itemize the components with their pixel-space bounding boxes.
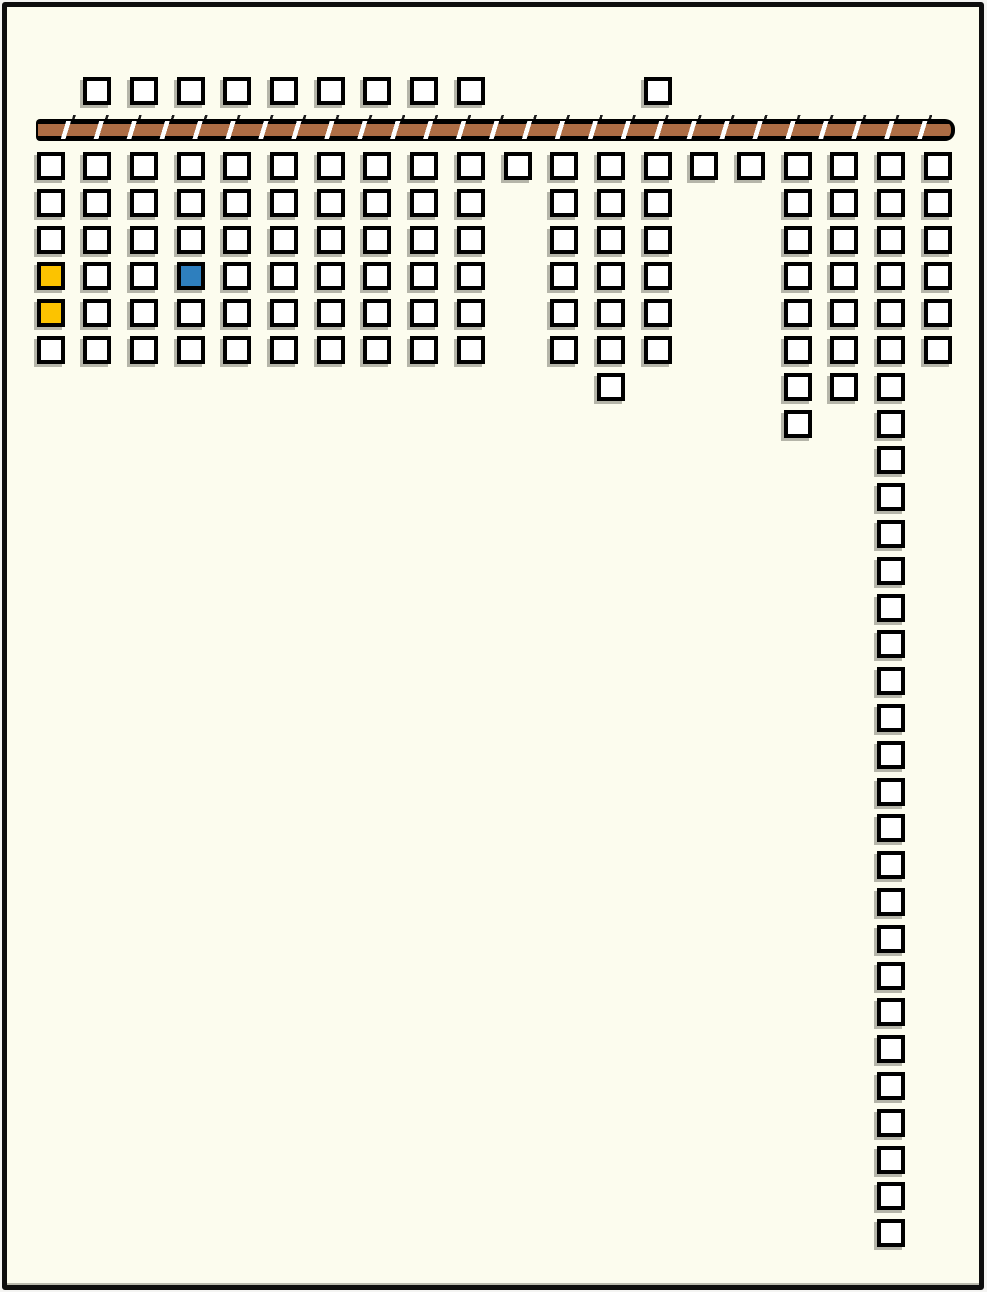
cell-r1-c4[interactable] [223, 189, 251, 217]
cell-r2-c2[interactable] [130, 226, 158, 254]
cell-r1-c19[interactable] [924, 189, 952, 217]
cell-r7-c16[interactable] [784, 410, 812, 438]
cell-top-c8[interactable] [410, 77, 438, 105]
hatched-bar [36, 119, 955, 141]
cell-r26-c18[interactable] [877, 1109, 905, 1137]
cell-r0-c12[interactable] [597, 152, 625, 180]
cell-r25-c18[interactable] [877, 1072, 905, 1100]
cell-r14-c18[interactable] [877, 667, 905, 695]
cell-r5-c5[interactable] [270, 336, 298, 364]
cell-r23-c18[interactable] [877, 998, 905, 1026]
cell-r1-c6[interactable] [317, 189, 345, 217]
cell-r5-c11[interactable] [550, 336, 578, 364]
cell-r22-c18[interactable] [877, 962, 905, 990]
cell-r2-c5[interactable] [270, 226, 298, 254]
cell-r3-c1[interactable] [83, 262, 111, 290]
cell-r0-c14[interactable] [690, 152, 718, 180]
cell-r2-c16[interactable] [784, 226, 812, 254]
cell-r6-c17[interactable] [830, 373, 858, 401]
cell-r3-c19[interactable] [924, 262, 952, 290]
cell-r0-c6[interactable] [317, 152, 345, 180]
cell-r5-c9[interactable] [457, 336, 485, 364]
cell-r4-c12[interactable] [597, 299, 625, 327]
cell-r3-c17[interactable] [830, 262, 858, 290]
cell-r29-c18[interactable] [877, 1219, 905, 1247]
cell-r2-c9[interactable] [457, 226, 485, 254]
cell-r2-c3[interactable] [177, 226, 205, 254]
cell-r7-c18[interactable] [877, 410, 905, 438]
cell-r5-c12[interactable] [597, 336, 625, 364]
cell-r3-c13[interactable] [644, 262, 672, 290]
cell-r9-c18[interactable] [877, 483, 905, 511]
cell-r4-c7[interactable] [363, 299, 391, 327]
cell-r1-c7[interactable] [363, 189, 391, 217]
cell-r13-c18[interactable] [877, 630, 905, 658]
cell-r5-c4[interactable] [223, 336, 251, 364]
cell-r2-c8[interactable] [410, 226, 438, 254]
cell-r1-c12[interactable] [597, 189, 625, 217]
cell-r2-c19[interactable] [924, 226, 952, 254]
cell-top-c6[interactable] [317, 77, 345, 105]
cell-r5-c6[interactable] [317, 336, 345, 364]
cell-r0-c9[interactable] [457, 152, 485, 180]
cell-r4-c11[interactable] [550, 299, 578, 327]
cell-r0-c19[interactable] [924, 152, 952, 180]
cell-r10-c18[interactable] [877, 520, 905, 548]
cell-top-c3[interactable] [177, 77, 205, 105]
cell-r5-c17[interactable] [830, 336, 858, 364]
cell-r11-c18[interactable] [877, 557, 905, 585]
cell-r5-c8[interactable] [410, 336, 438, 364]
cell-top-c2[interactable] [130, 77, 158, 105]
cell-r1-c8[interactable] [410, 189, 438, 217]
page-canvas [0, 0, 987, 1292]
cell-r0-c15[interactable] [737, 152, 765, 180]
cell-r5-c0[interactable] [37, 336, 65, 364]
cell-r4-c16[interactable] [784, 299, 812, 327]
cell-r1-c5[interactable] [270, 189, 298, 217]
cell-r3-c7[interactable] [363, 262, 391, 290]
cell-r17-c18[interactable] [877, 778, 905, 806]
cell-r5-c19[interactable] [924, 336, 952, 364]
cell-top-c4[interactable] [223, 77, 251, 105]
cell-r28-c18[interactable] [877, 1182, 905, 1210]
cell-r5-c1[interactable] [83, 336, 111, 364]
cell-r3-c18[interactable] [877, 262, 905, 290]
cell-r4-c1[interactable] [83, 299, 111, 327]
cell-r15-c18[interactable] [877, 704, 905, 732]
cell-r4-c5[interactable] [270, 299, 298, 327]
cell-r2-c0[interactable] [37, 226, 65, 254]
cell-r4-c9[interactable] [457, 299, 485, 327]
cell-r2-c1[interactable] [83, 226, 111, 254]
cell-r3-c9[interactable] [457, 262, 485, 290]
cell-r0-c17[interactable] [830, 152, 858, 180]
cell-r0-c0[interactable] [37, 152, 65, 180]
cell-r1-c0[interactable] [37, 189, 65, 217]
hatched-bar-stripes [38, 121, 951, 139]
cell-r4-c8[interactable] [410, 299, 438, 327]
cell-r5-c2[interactable] [130, 336, 158, 364]
cell-r0-c10[interactable] [504, 152, 532, 180]
cell-r6-c16[interactable] [784, 373, 812, 401]
cell-r3-c0[interactable] [37, 262, 65, 290]
cell-r3-c12[interactable] [597, 262, 625, 290]
cell-r2-c6[interactable] [317, 226, 345, 254]
cell-r1-c9[interactable] [457, 189, 485, 217]
cell-r1-c1[interactable] [83, 189, 111, 217]
cell-r27-c18[interactable] [877, 1146, 905, 1174]
cell-r2-c13[interactable] [644, 226, 672, 254]
cell-r0-c5[interactable] [270, 152, 298, 180]
cell-r0-c1[interactable] [83, 152, 111, 180]
cell-r5-c16[interactable] [784, 336, 812, 364]
cell-r4-c13[interactable] [644, 299, 672, 327]
cell-r0-c8[interactable] [410, 152, 438, 180]
cell-r3-c8[interactable] [410, 262, 438, 290]
cell-r3-c6[interactable] [317, 262, 345, 290]
cell-r6-c12[interactable] [597, 373, 625, 401]
cell-r2-c18[interactable] [877, 226, 905, 254]
cell-r3-c5[interactable] [270, 262, 298, 290]
cell-r4-c17[interactable] [830, 299, 858, 327]
cell-r16-c18[interactable] [877, 741, 905, 769]
cell-r0-c18[interactable] [877, 152, 905, 180]
cell-r1-c16[interactable] [784, 189, 812, 217]
cell-r0-c2[interactable] [130, 152, 158, 180]
cell-r3-c16[interactable] [784, 262, 812, 290]
cell-r4-c3[interactable] [177, 299, 205, 327]
cell-r1-c18[interactable] [877, 189, 905, 217]
cell-r1-c11[interactable] [550, 189, 578, 217]
cell-r3-c3[interactable] [177, 262, 205, 290]
hatched-bar-ticks [44, 115, 945, 119]
cell-r0-c3[interactable] [177, 152, 205, 180]
cell-r12-c18[interactable] [877, 594, 905, 622]
cell-r20-c18[interactable] [877, 888, 905, 916]
cell-r0-c13[interactable] [644, 152, 672, 180]
cell-r6-c18[interactable] [877, 373, 905, 401]
cell-r2-c12[interactable] [597, 226, 625, 254]
cell-r2-c4[interactable] [223, 226, 251, 254]
cell-r4-c6[interactable] [317, 299, 345, 327]
cell-r21-c18[interactable] [877, 925, 905, 953]
cell-r2-c17[interactable] [830, 226, 858, 254]
cell-r5-c7[interactable] [363, 336, 391, 364]
cell-r3-c2[interactable] [130, 262, 158, 290]
board [0, 0, 987, 1292]
cell-top-c7[interactable] [363, 77, 391, 105]
cell-r4-c4[interactable] [223, 299, 251, 327]
cell-r5-c3[interactable] [177, 336, 205, 364]
cell-top-c1[interactable] [83, 77, 111, 105]
cell-r1-c3[interactable] [177, 189, 205, 217]
cell-r0-c11[interactable] [550, 152, 578, 180]
cell-top-c5[interactable] [270, 77, 298, 105]
cell-r2-c7[interactable] [363, 226, 391, 254]
cell-r18-c18[interactable] [877, 814, 905, 842]
cell-top-c9[interactable] [457, 77, 485, 105]
cell-r1-c13[interactable] [644, 189, 672, 217]
cell-r3-c11[interactable] [550, 262, 578, 290]
cell-r2-c11[interactable] [550, 226, 578, 254]
cell-r3-c4[interactable] [223, 262, 251, 290]
cell-r5-c18[interactable] [877, 336, 905, 364]
cell-r4-c19[interactable] [924, 299, 952, 327]
cell-r0-c16[interactable] [784, 152, 812, 180]
cell-r1-c17[interactable] [830, 189, 858, 217]
cell-r19-c18[interactable] [877, 851, 905, 879]
cell-r4-c0[interactable] [37, 299, 65, 327]
cell-r5-c13[interactable] [644, 336, 672, 364]
cell-top-c13[interactable] [644, 77, 672, 105]
cell-r4-c2[interactable] [130, 299, 158, 327]
cell-r0-c7[interactable] [363, 152, 391, 180]
cell-r1-c2[interactable] [130, 189, 158, 217]
cell-r0-c4[interactable] [223, 152, 251, 180]
cell-r24-c18[interactable] [877, 1035, 905, 1063]
cell-r8-c18[interactable] [877, 446, 905, 474]
cell-r4-c18[interactable] [877, 299, 905, 327]
